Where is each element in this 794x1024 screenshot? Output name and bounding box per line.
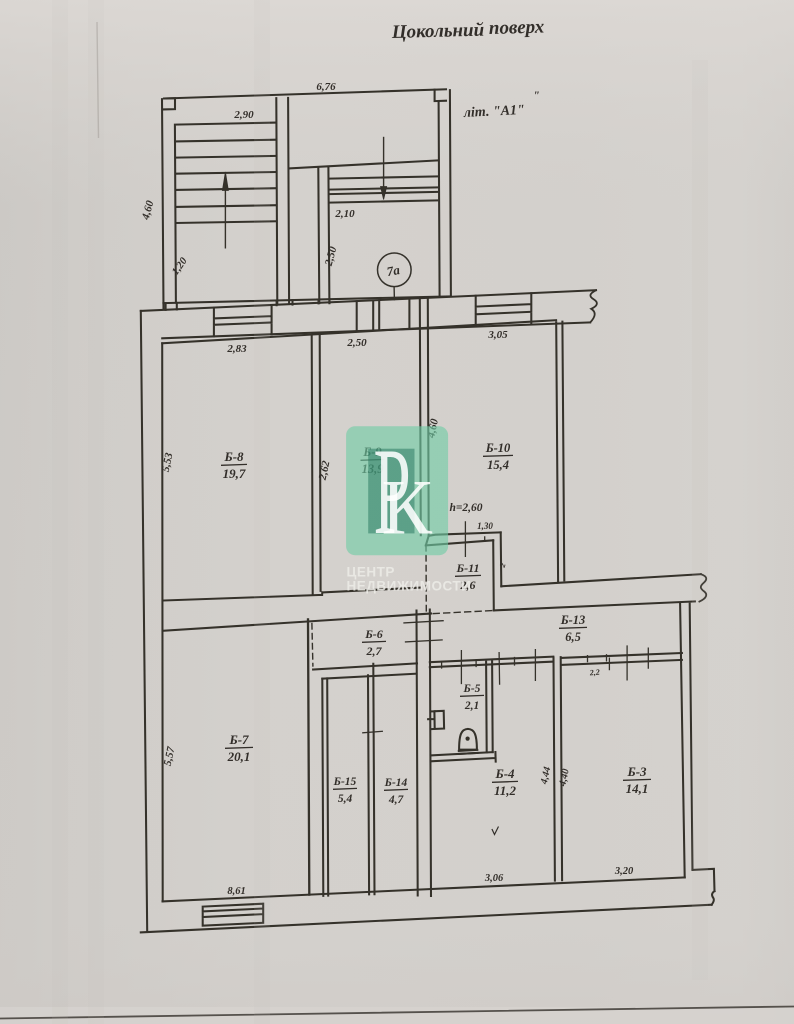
svg-text:6,5: 6,5 [565, 630, 581, 644]
svg-text:2,50: 2,50 [346, 337, 367, 349]
svg-text:8,61: 8,61 [227, 886, 245, 897]
svg-text:3,05: 3,05 [487, 329, 508, 341]
svg-text:3,06: 3,06 [484, 873, 504, 884]
svg-text:15,4: 15,4 [487, 458, 509, 472]
svg-text:Б-14: Б-14 [384, 777, 408, 789]
svg-text:Б-4: Б-4 [494, 766, 515, 781]
svg-text:НЕДВИЖИМОСТИ: НЕДВИЖИМОСТИ [347, 579, 472, 594]
svg-text:2,83: 2,83 [226, 343, 247, 355]
svg-text:Б-11: Б-11 [456, 561, 480, 575]
svg-text:11,2: 11,2 [494, 783, 517, 798]
svg-text:поверх: поверх [489, 17, 545, 39]
svg-text:2,90: 2,90 [233, 109, 254, 121]
svg-text:2,2: 2,2 [588, 668, 600, 678]
svg-text:2,1: 2,1 [464, 700, 479, 712]
svg-text:5,4: 5,4 [338, 793, 353, 805]
svg-text:3,20: 3,20 [614, 866, 634, 877]
svg-text:Б-8: Б-8 [223, 449, 244, 464]
svg-text:Б-10: Б-10 [485, 441, 511, 455]
svg-text:20,1: 20,1 [227, 749, 251, 764]
svg-text:4,7: 4,7 [388, 794, 405, 806]
svg-text:Цокольний: Цокольний [391, 20, 485, 43]
svg-text:Б-15: Б-15 [333, 776, 357, 788]
svg-text:Б-13: Б-13 [560, 613, 586, 627]
svg-text:1,30: 1,30 [477, 521, 493, 531]
svg-text:К: К [382, 464, 433, 550]
svg-text:2,10: 2,10 [334, 208, 355, 220]
svg-text:": " [533, 88, 540, 102]
svg-text:Б-3: Б-3 [626, 764, 647, 779]
svg-text:Б-5: Б-5 [463, 683, 481, 695]
svg-text:14,1: 14,1 [626, 781, 649, 796]
svg-text:ЦЕНТР: ЦЕНТР [347, 565, 395, 580]
svg-text:Б-7: Б-7 [228, 732, 249, 747]
svg-text:2,7: 2,7 [366, 644, 383, 658]
svg-text:6,76: 6,76 [316, 81, 336, 93]
svg-text:19,7: 19,7 [223, 466, 246, 481]
svg-text:h=2,60: h=2,60 [449, 502, 482, 514]
svg-text:Б-6: Б-6 [364, 627, 383, 641]
